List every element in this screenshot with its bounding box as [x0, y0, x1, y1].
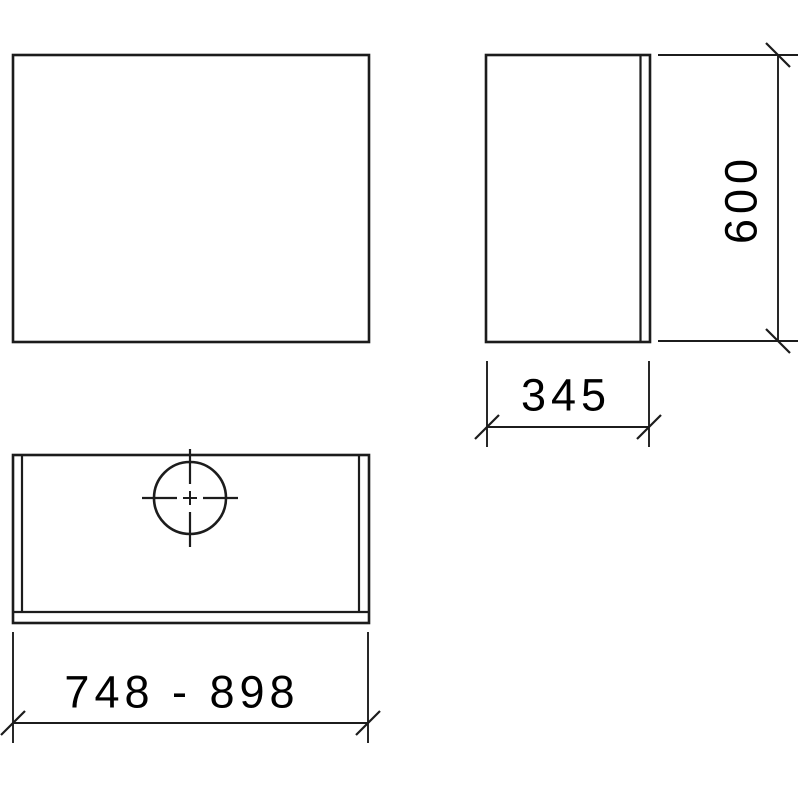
- height-dimension-label: 600: [716, 154, 767, 244]
- tap-hole-center-mark: [142, 449, 238, 547]
- plan-view: [13, 449, 369, 623]
- side-view: [486, 55, 650, 342]
- front-view: [13, 55, 369, 342]
- depth-dimension-label: 345: [521, 370, 611, 421]
- technical-drawing-canvas: 600 345 748 - 898: [0, 0, 800, 800]
- side-view-outline: [486, 55, 650, 342]
- width-dimension-label: 748 - 898: [64, 667, 299, 718]
- dimension-height: 600: [658, 43, 798, 353]
- three-view-drawing: 600 345 748 - 898: [0, 0, 800, 800]
- dimension-depth: 345: [475, 361, 661, 447]
- front-view-outline: [13, 55, 369, 342]
- dimension-width-range: 748 - 898: [1, 632, 380, 743]
